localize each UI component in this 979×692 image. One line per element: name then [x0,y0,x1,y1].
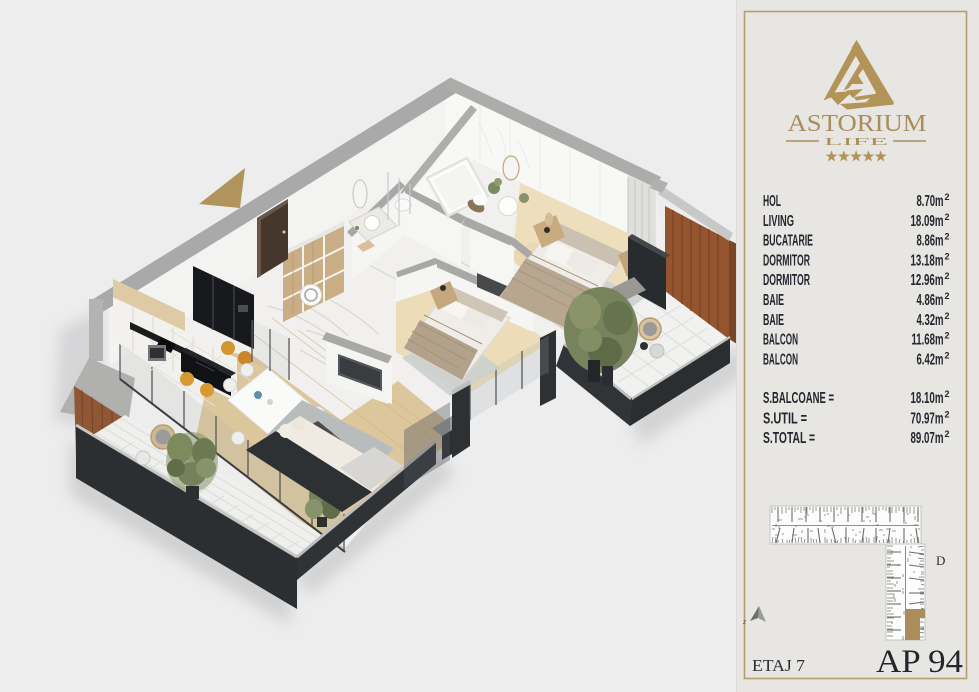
svg-text:D: D [936,553,945,568]
svg-text:BALCON: BALCON [763,332,798,349]
svg-text:BAIE: BAIE [763,292,784,309]
svg-text:2: 2 [945,429,950,439]
svg-text:AP 94: AP 94 [876,644,963,680]
svg-text:8.86m: 8.86m [917,233,944,250]
svg-text:4.86m: 4.86m [917,292,944,309]
svg-text:BAIE: BAIE [763,312,784,329]
svg-text:HOL: HOL [763,193,781,210]
svg-text:2: 2 [945,311,950,321]
svg-text:S.TOTAL =: S.TOTAL = [763,430,815,447]
svg-text:4.32m: 4.32m [917,312,944,329]
svg-text:18.09m: 18.09m [911,213,944,230]
svg-text:BALCON: BALCON [763,351,798,368]
svg-text:2: 2 [945,251,950,261]
svg-text:11.68m: 11.68m [912,332,944,349]
svg-text:2: 2 [945,291,950,301]
svg-text:LIFE: LIFE [824,137,888,148]
svg-text:DORMITOR: DORMITOR [763,272,810,289]
svg-text:6.42m: 6.42m [917,351,944,368]
svg-text:DORMITOR: DORMITOR [763,252,810,269]
svg-text:8.70m: 8.70m [917,193,944,210]
svg-text:ETAJ 7: ETAJ 7 [752,656,806,675]
svg-text:S.BALCOANE =: S.BALCOANE = [763,390,834,407]
svg-text:2: 2 [945,350,950,360]
svg-text:LIVING: LIVING [763,213,794,230]
svg-text:2: 2 [945,331,950,341]
svg-text:ASTORIUM: ASTORIUM [788,111,927,137]
svg-text:2: 2 [945,212,950,222]
svg-text:2: 2 [945,192,950,202]
svg-text:89.07m: 89.07m [911,430,944,447]
svg-text:70.97m: 70.97m [911,410,944,427]
svg-text:12.96m: 12.96m [911,272,944,289]
svg-text:BUCATARIE: BUCATARIE [763,233,813,250]
svg-text:2: 2 [945,389,950,399]
svg-text:2: 2 [945,271,950,281]
svg-text:2: 2 [945,232,950,242]
svg-text:2: 2 [945,409,950,419]
svg-text:S.UTIL =: S.UTIL = [763,410,807,427]
svg-text:13.18m: 13.18m [911,252,944,269]
svg-text:18.10m: 18.10m [911,390,944,407]
